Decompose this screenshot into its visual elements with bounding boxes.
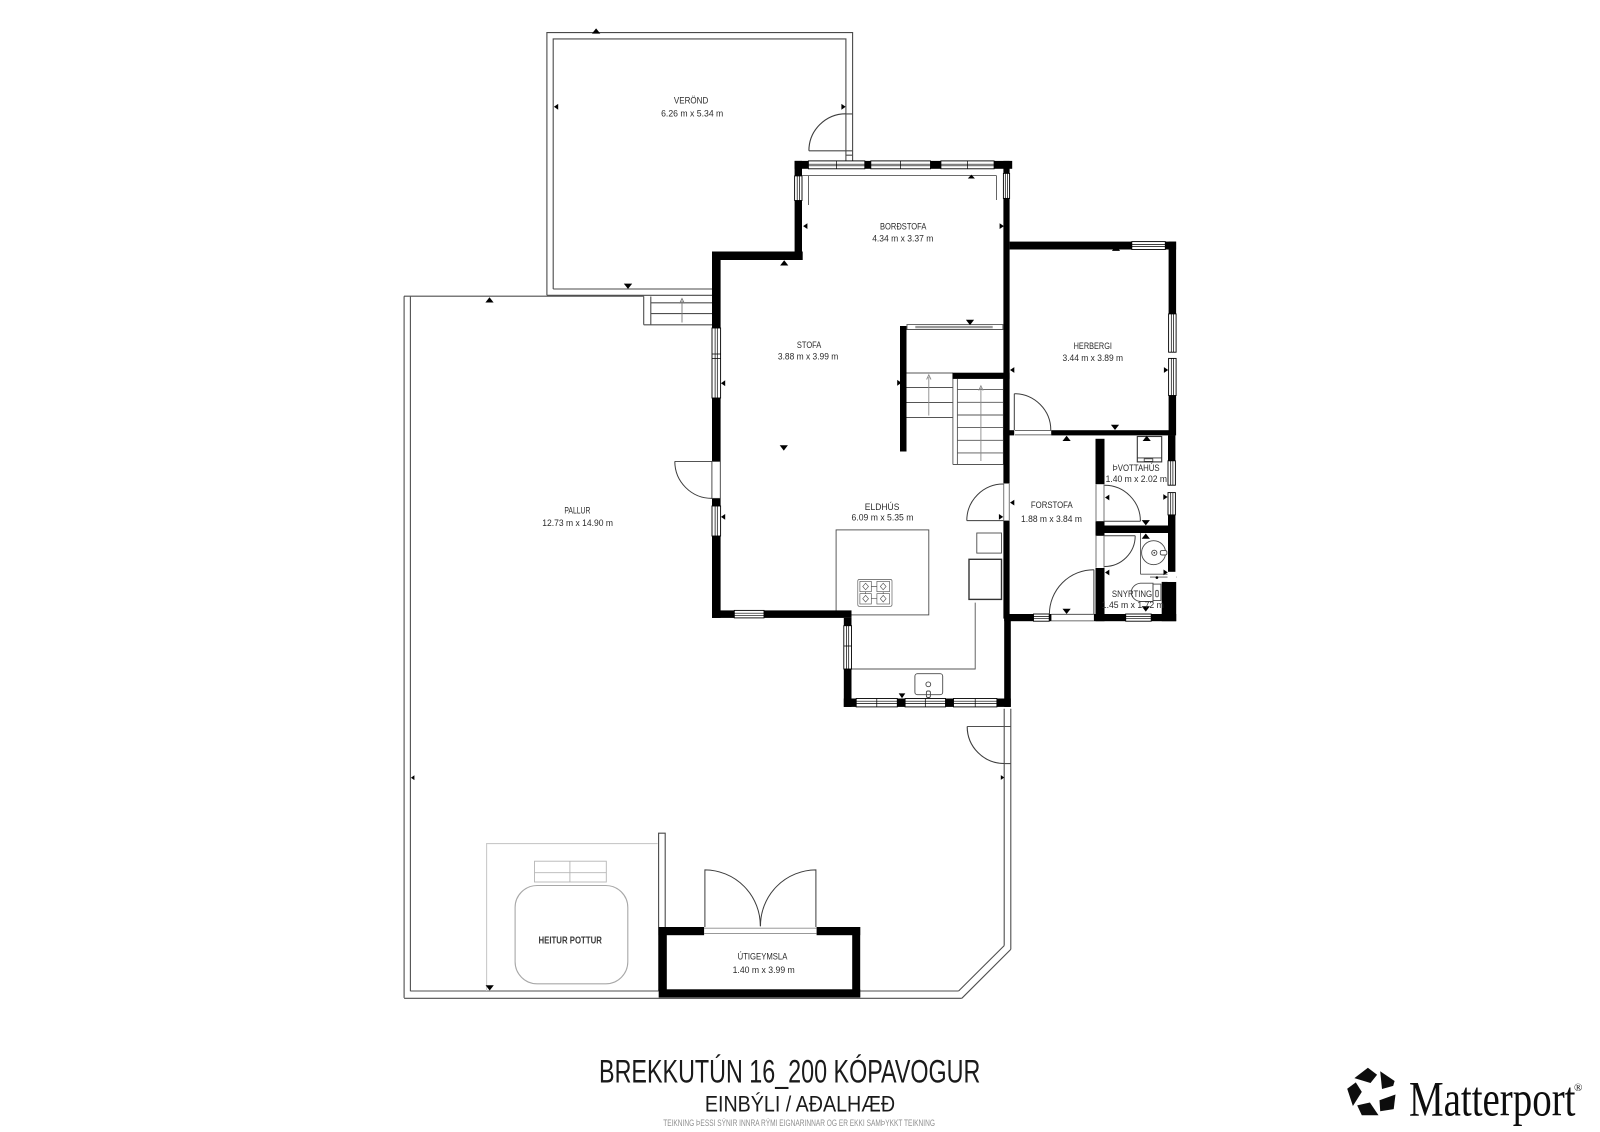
svg-text:®: ® [1574, 1082, 1582, 1094]
svg-text:ELDHÚS: ELDHÚS [865, 502, 900, 513]
svg-text:BORÐSTOFA: BORÐSTOFA [880, 222, 927, 233]
svg-text:BREKKUTÚN 16_200 KÓPAVOGUR: BREKKUTÚN 16_200 KÓPAVOGUR [599, 1053, 980, 1090]
svg-text:EINBÝLI / AÐALHÆÐ: EINBÝLI / AÐALHÆÐ [705, 1092, 895, 1117]
svg-text:VERÖND: VERÖND [674, 96, 708, 107]
svg-text:1.40 m x 2.02 m: 1.40 m x 2.02 m [1106, 474, 1167, 485]
svg-text:3.88 m x 3.99 m: 3.88 m x 3.99 m [778, 351, 838, 362]
svg-text:3.44 m x 3.89 m: 3.44 m x 3.89 m [1063, 353, 1124, 364]
svg-text:HEITUR POTTUR: HEITUR POTTUR [539, 935, 603, 946]
svg-text:4.34 m x 3.37 m: 4.34 m x 3.37 m [872, 233, 933, 244]
svg-text:1.45 m x 1.72 m: 1.45 m x 1.72 m [1102, 600, 1164, 611]
svg-text:PALLUR: PALLUR [564, 506, 590, 517]
svg-text:TEIKNING ÞESSI SÝNIR INNRA RÝM: TEIKNING ÞESSI SÝNIR INNRA RÝMI EIGNARIN… [663, 1118, 935, 1128]
svg-text:1.40 m x 3.99 m: 1.40 m x 3.99 m [733, 965, 795, 976]
svg-text:1.88 m x 3.84 m: 1.88 m x 3.84 m [1021, 514, 1082, 525]
svg-text:6.09 m x 5.35 m: 6.09 m x 5.35 m [852, 513, 914, 524]
svg-text:STOFA: STOFA [797, 340, 822, 351]
svg-text:ÚTIGEYMSLA: ÚTIGEYMSLA [738, 952, 788, 963]
svg-text:HERBERGI: HERBERGI [1074, 341, 1112, 352]
svg-text:6.26 m x 5.34 m: 6.26 m x 5.34 m [661, 109, 723, 120]
svg-text:12.73 m x 14.90 m: 12.73 m x 14.90 m [542, 518, 613, 529]
svg-text:SNYRTING: SNYRTING [1112, 589, 1152, 600]
svg-text:Matterport: Matterport [1409, 1070, 1576, 1126]
svg-text:ÞVOTTAHÚS: ÞVOTTAHÚS [1113, 463, 1160, 474]
svg-text:FORSTOFA: FORSTOFA [1031, 500, 1073, 511]
